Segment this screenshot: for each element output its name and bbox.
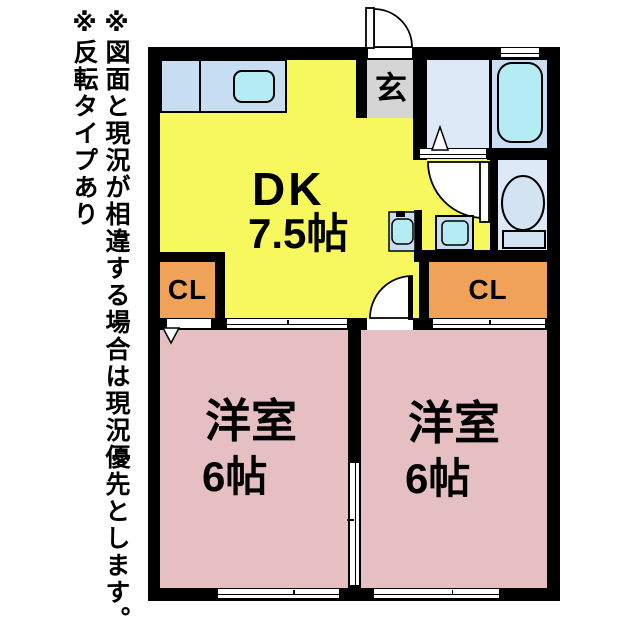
wall-closet-right-side: [419, 250, 429, 330]
side-notes: ※図面と現況が相違する場合は現況優先とします。 ※反転タイプあり: [68, 8, 132, 636]
closet-right-sliding-door: [432, 318, 546, 329]
wall-entrance-right: [413, 47, 427, 160]
closet-left-label: CL: [160, 262, 215, 318]
wall-left: [148, 47, 160, 601]
kitchen-counter-divider: [199, 59, 201, 113]
dk-size-label: 7.5帖: [248, 213, 348, 255]
washroom-floor: [427, 58, 490, 148]
toilet-room-floor: [497, 158, 547, 250]
floorplan-page: { "side_notes": { "disclaimer": "※図面と現況が…: [0, 0, 640, 640]
washroom-sliding-door: [419, 148, 487, 159]
bathtub-icon: [497, 62, 543, 143]
bath-partition-line: [489, 58, 491, 148]
wall-top: [148, 47, 560, 60]
wall-right: [547, 47, 560, 601]
room-right-label: 洋室: [408, 400, 500, 446]
wall-closet-left-side: [215, 252, 225, 330]
dk-label: DK: [252, 166, 324, 212]
wall-basin-stub: [414, 210, 422, 262]
wall-entrance-left: [356, 47, 367, 118]
entrance-label: 玄: [367, 58, 415, 118]
divider-sliding-door: [349, 462, 360, 586]
room-right-door-gap: [367, 318, 413, 330]
room-left-size: 6帖: [202, 456, 267, 498]
note-disclaimer: ※図面と現況が相違する場合は現況優先とします。: [102, 8, 130, 633]
bath-window: [500, 47, 540, 58]
room-left-label: 洋室: [205, 398, 297, 444]
wall-closet-right-top: [419, 250, 547, 262]
wall-toilet-left: [490, 148, 498, 250]
closet-left-door: [166, 318, 212, 329]
kitchen-sink-icon: [233, 70, 275, 103]
closet-right-label: CL: [429, 262, 547, 318]
room-left-window: [217, 588, 340, 599]
room-right-size: 6帖: [405, 458, 470, 500]
dk-room-left-sliding-door: [226, 318, 348, 329]
note-reversal: ※反転タイプあり: [70, 8, 98, 228]
room-right-window: [373, 588, 500, 599]
entrance-door-icon: [366, 8, 412, 48]
